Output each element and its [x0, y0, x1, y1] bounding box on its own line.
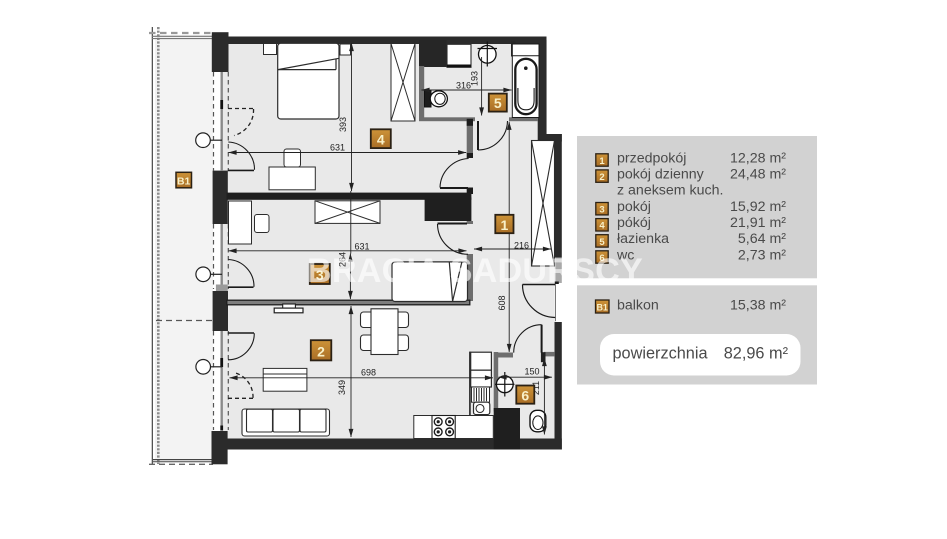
svg-text:3: 3 — [599, 205, 604, 216]
svg-text:2: 2 — [599, 172, 604, 183]
svg-text:2,73 m²: 2,73 m² — [738, 247, 786, 263]
svg-text:193: 193 — [469, 71, 479, 86]
svg-text:216: 216 — [514, 240, 529, 250]
svg-text:698: 698 — [361, 367, 376, 377]
svg-text:5,64 m²: 5,64 m² — [738, 231, 786, 247]
svg-text:150: 150 — [525, 367, 540, 377]
svg-text:24,48 m²: 24,48 m² — [730, 166, 786, 182]
svg-text:82,96 m²: 82,96 m² — [724, 345, 789, 363]
svg-text:powierzchnia: powierzchnia — [613, 345, 709, 363]
svg-text:pokój: pokój — [617, 199, 651, 215]
svg-text:5: 5 — [599, 237, 605, 248]
svg-text:631: 631 — [330, 142, 345, 152]
svg-text:15,92 m²: 15,92 m² — [730, 199, 786, 215]
svg-text:pokój dzienny: pokój dzienny — [617, 166, 705, 182]
svg-text:21,91 m²: 21,91 m² — [730, 215, 786, 231]
svg-text:balkon: balkon — [617, 297, 659, 313]
svg-text:15,38 m²: 15,38 m² — [730, 297, 786, 313]
svg-text:1: 1 — [501, 217, 509, 233]
svg-text:1: 1 — [599, 156, 605, 167]
svg-text:B1: B1 — [596, 302, 608, 312]
svg-text:12,28 m²: 12,28 m² — [730, 150, 786, 166]
svg-text:4: 4 — [599, 221, 605, 232]
svg-text:631: 631 — [355, 241, 370, 251]
svg-text:608: 608 — [497, 295, 507, 310]
svg-text:B1: B1 — [177, 175, 191, 187]
svg-text:5: 5 — [494, 95, 502, 111]
svg-text:z aneksem kuch.: z aneksem kuch. — [617, 183, 723, 199]
svg-text:łazienka: łazienka — [617, 231, 669, 247]
svg-text:349: 349 — [337, 380, 347, 395]
svg-text:przedpokój: przedpokój — [617, 150, 686, 166]
svg-text:6: 6 — [521, 387, 529, 403]
svg-text:393: 393 — [338, 117, 348, 132]
svg-text:pókój: pókój — [617, 215, 651, 231]
svg-text:BRACIA SADURSCY: BRACIA SADURSCY — [307, 252, 643, 290]
svg-text:4: 4 — [377, 132, 385, 148]
svg-text:2: 2 — [317, 343, 325, 359]
